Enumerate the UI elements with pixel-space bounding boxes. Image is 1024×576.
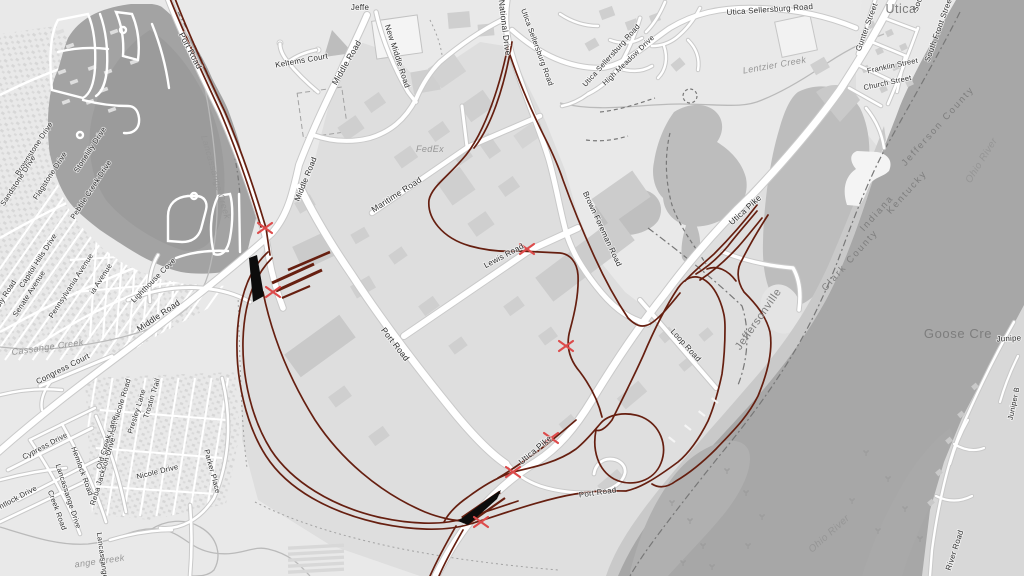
svg-text:Jeffe: Jeffe: [351, 3, 370, 12]
svg-text:Junipe: Junipe: [996, 333, 1022, 343]
svg-text:Utica: Utica: [886, 2, 917, 16]
svg-text:FedEx: FedEx: [416, 144, 444, 154]
svg-text:Goose Cre: Goose Cre: [924, 326, 992, 341]
